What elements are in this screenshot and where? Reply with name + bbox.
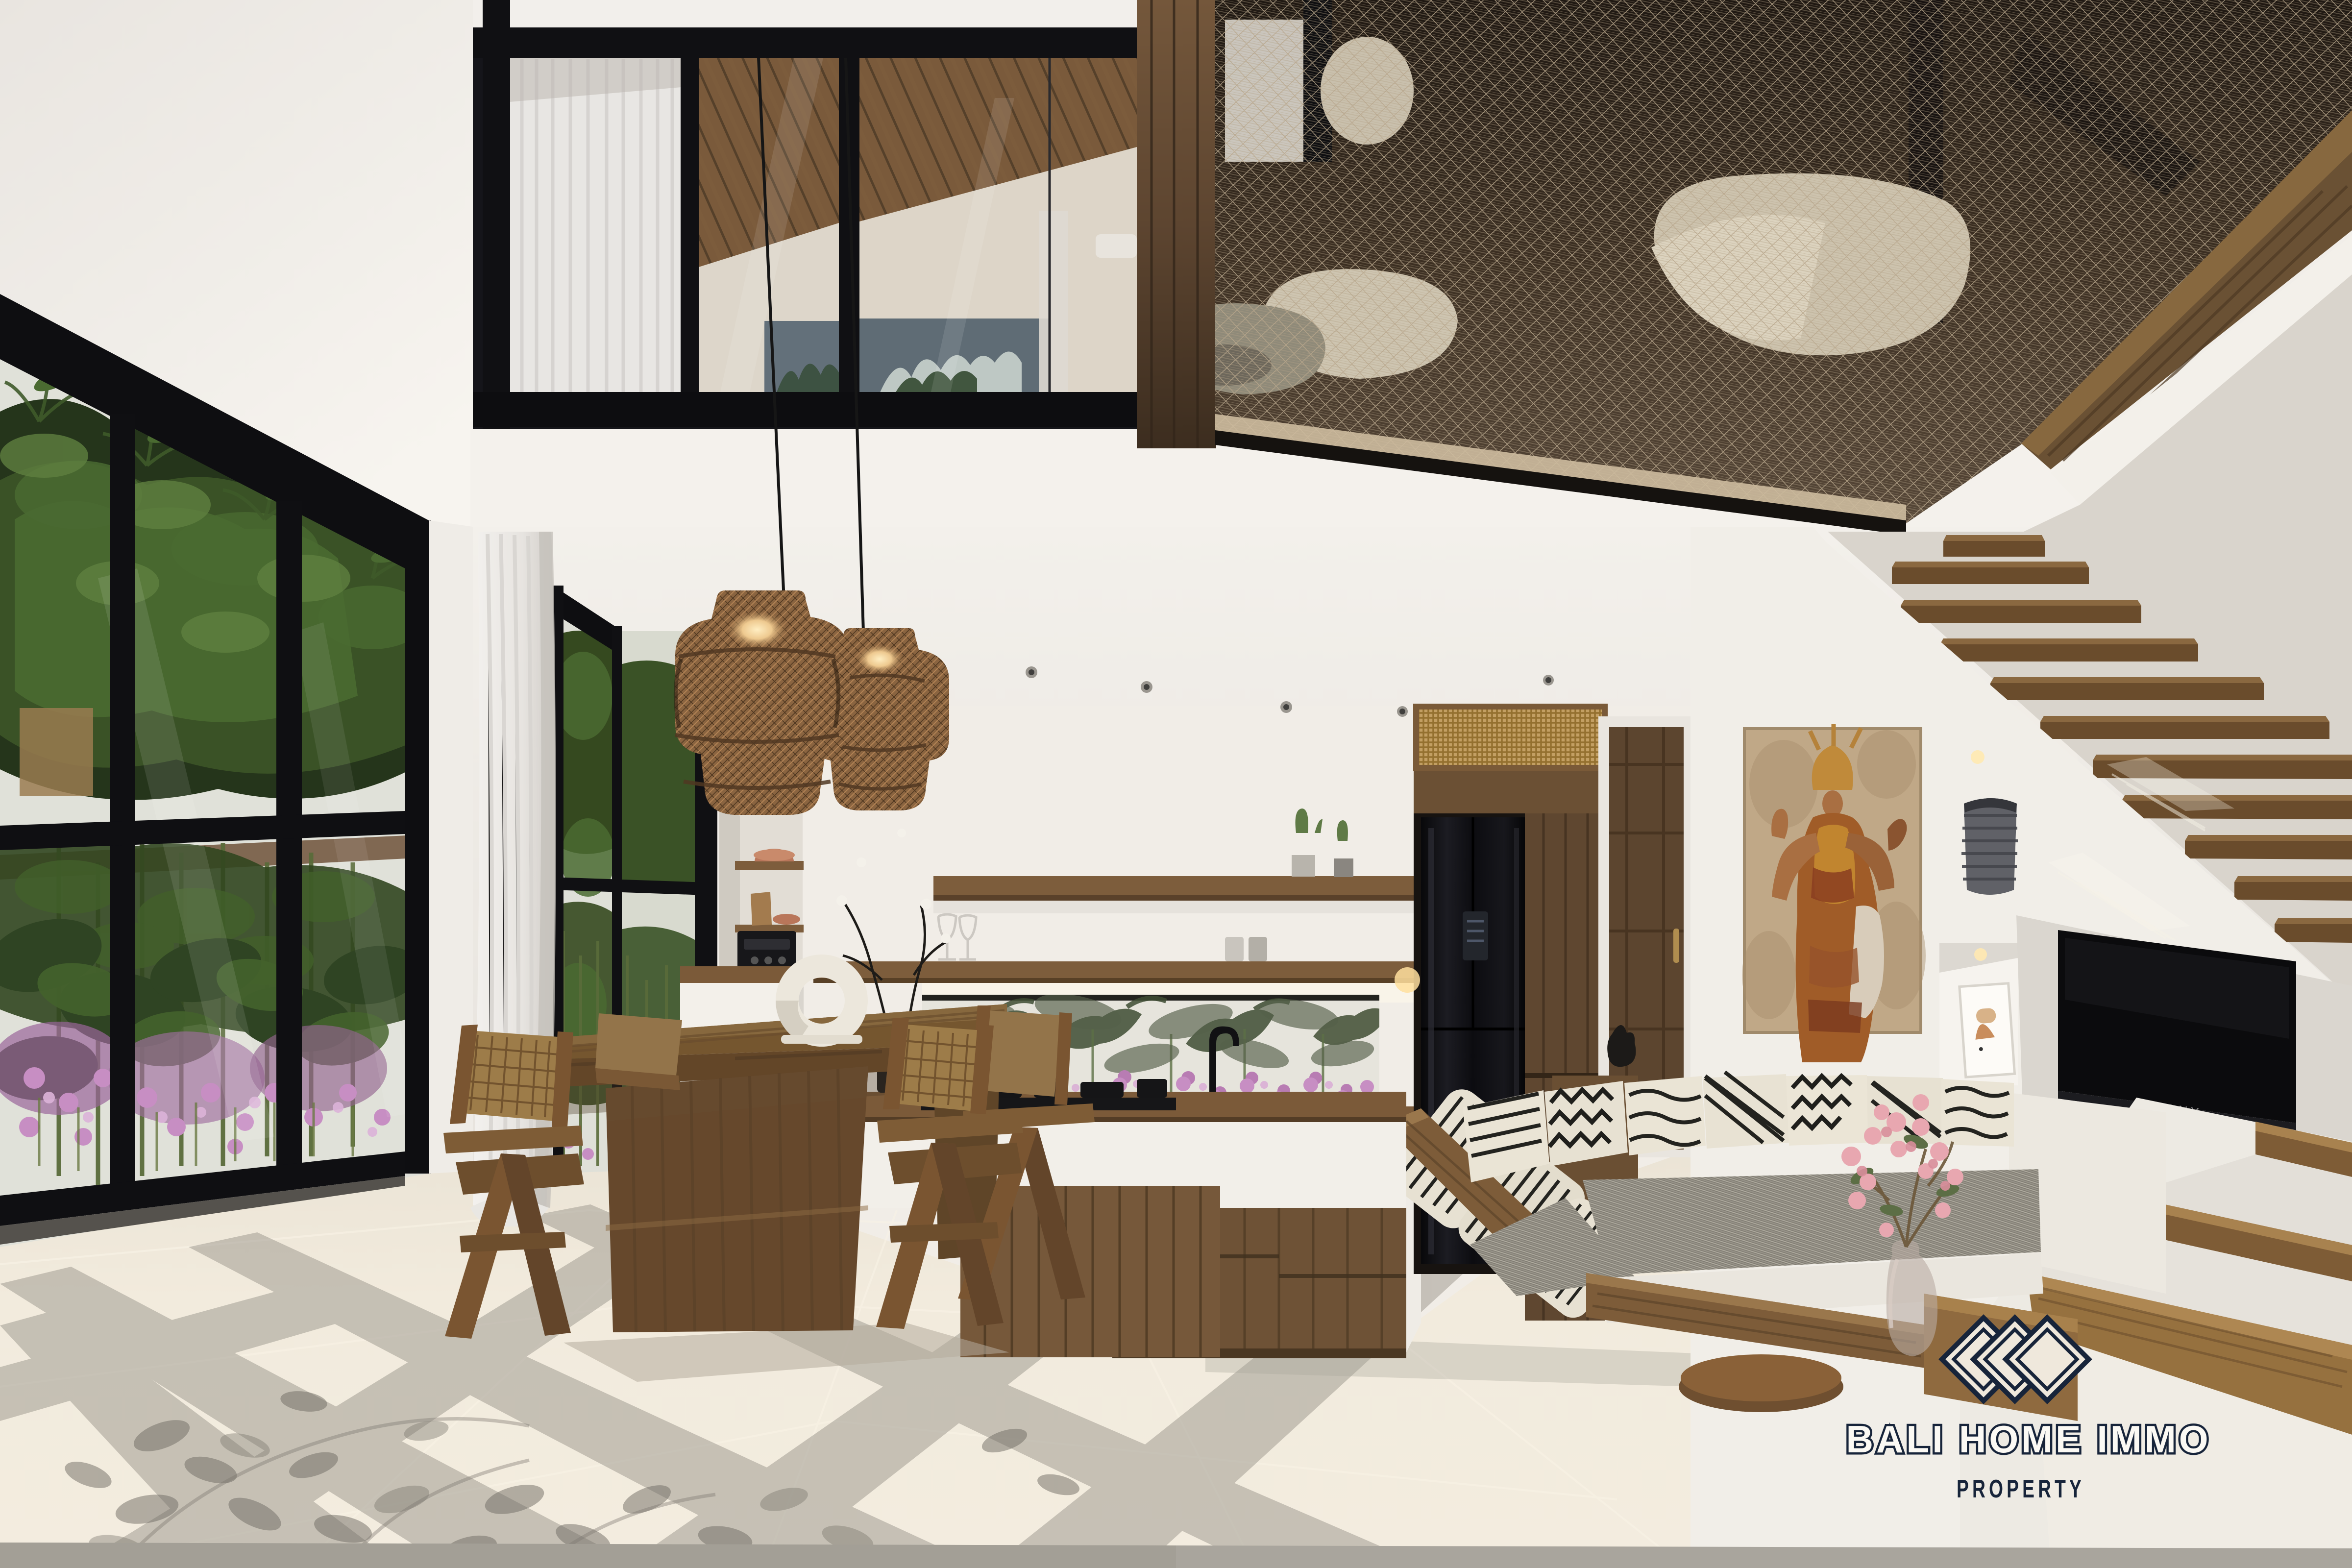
svg-text:PROPERTY: PROPERTY xyxy=(1957,1475,2085,1503)
svg-text:BALI HOME IMMO: BALI HOME IMMO xyxy=(1846,1418,2211,1461)
